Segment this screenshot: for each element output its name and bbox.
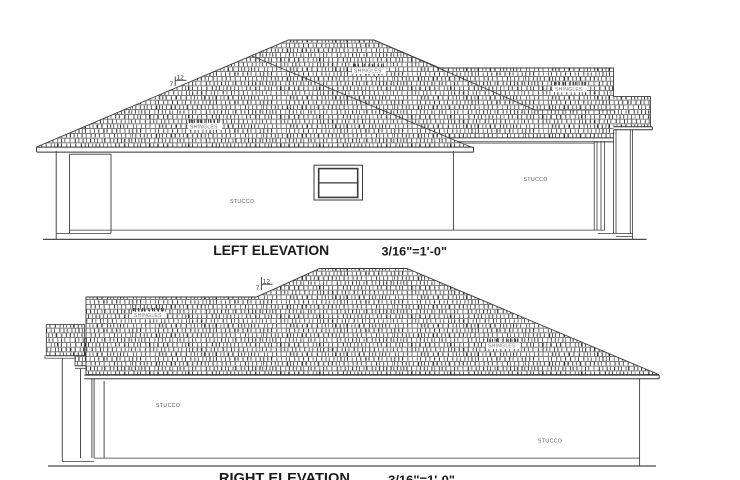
svg-text:7: 7 — [256, 285, 260, 292]
svg-text:12: 12 — [263, 279, 271, 286]
svg-text:STUCCO: STUCCO — [230, 199, 254, 205]
svg-text:3/16"=1'-0": 3/16"=1'-0" — [382, 246, 448, 258]
svg-text:RIGHT ELEVATION: RIGHT ELEVATION — [219, 470, 350, 480]
svg-text:LEFT ELEVATION: LEFT ELEVATION — [213, 242, 329, 258]
svg-text:STUCCO: STUCCO — [524, 177, 548, 183]
svg-text:SHINGLES: SHINGLES — [190, 124, 218, 130]
svg-text:SHINGLES: SHINGLES — [354, 69, 382, 75]
svg-text:SHINGLES: SHINGLES — [488, 344, 516, 350]
svg-text:12: 12 — [177, 75, 185, 82]
svg-text:SHINGLES: SHINGLES — [555, 87, 583, 93]
svg-text:STUCCO: STUCCO — [538, 439, 562, 445]
svg-text:3/16"=1'-0": 3/16"=1'-0" — [388, 475, 455, 480]
svg-text:7: 7 — [170, 81, 174, 88]
svg-text:SHINGLES: SHINGLES — [134, 313, 162, 319]
svg-text:STUCCO: STUCCO — [156, 403, 180, 409]
